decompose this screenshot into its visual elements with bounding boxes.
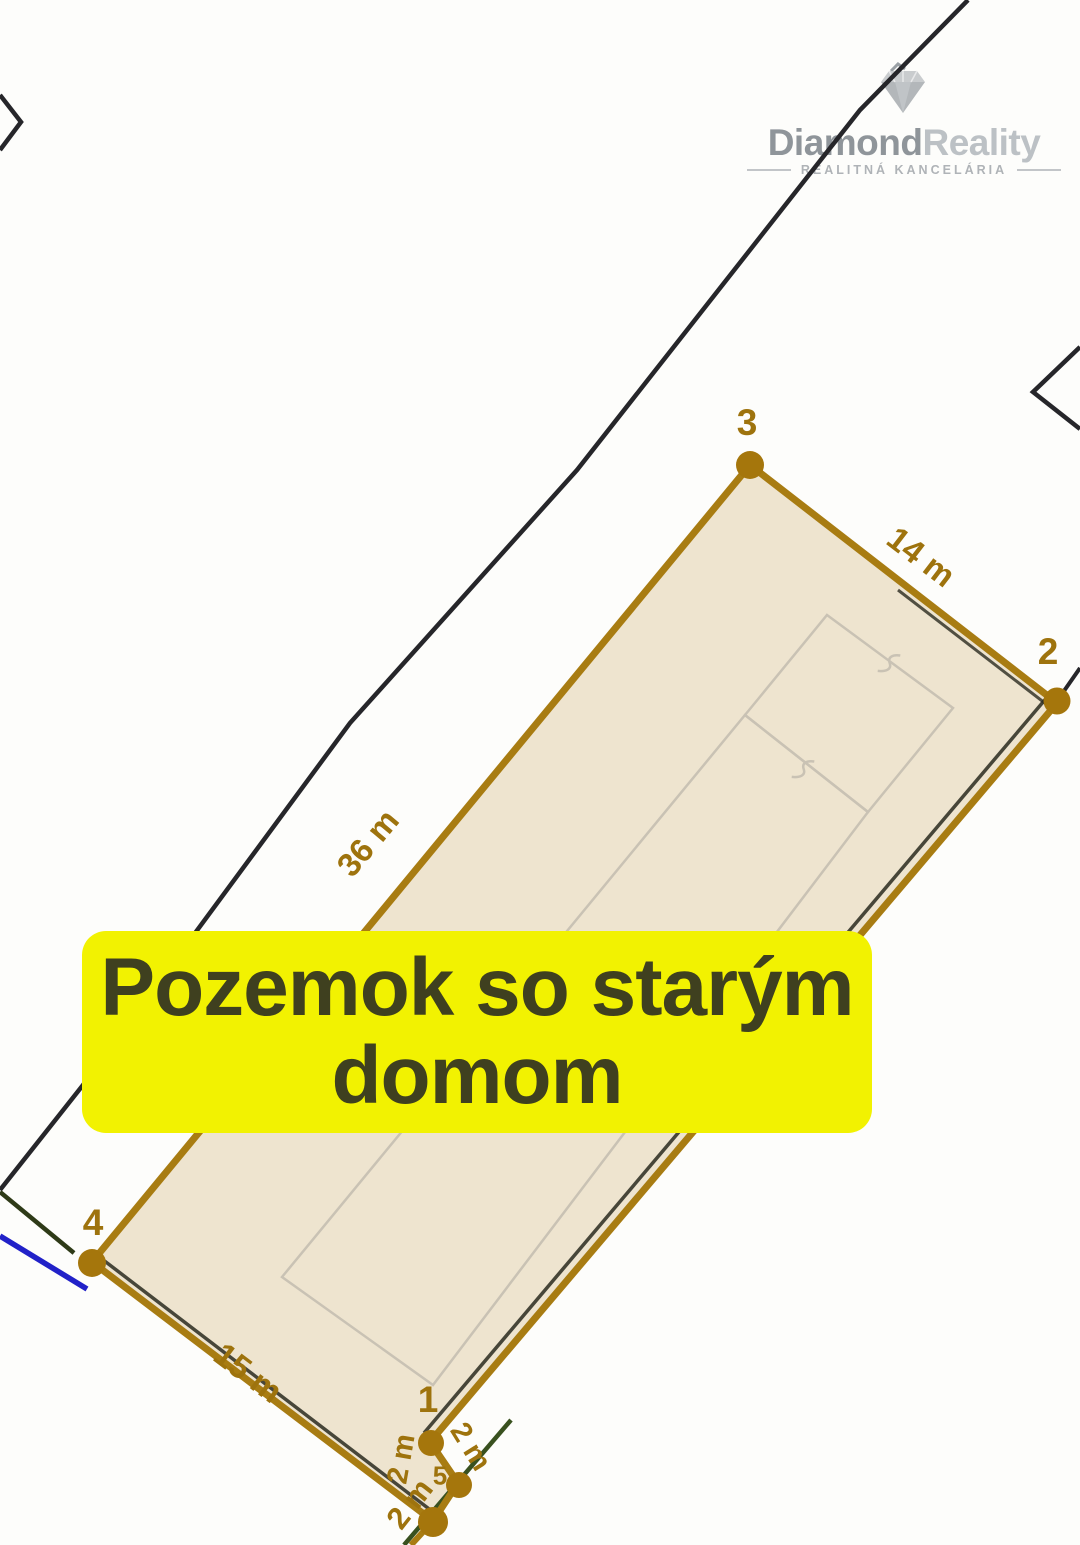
corner-dot-3 <box>736 451 764 479</box>
corner-label-4: 4 <box>83 1202 104 1244</box>
parcel-map-drawing <box>0 0 1080 1545</box>
corner-dot-4 <box>78 1249 106 1277</box>
neighbor-boundary-chevron-right <box>1033 347 1080 429</box>
blue-utility-line <box>0 1236 87 1289</box>
corner-label-2: 2 <box>1038 631 1059 673</box>
corner-label-1: 1 <box>418 1379 439 1421</box>
cadastral-map-image: DiamondReality REALITNÁ KANCELÁRIA <box>0 0 1080 1545</box>
corner-dot-2 <box>1044 688 1071 715</box>
banner-title-line2: domom <box>331 1035 622 1117</box>
banner-title-line1: Pozemok so starým <box>100 947 853 1029</box>
corner-label-3: 3 <box>737 402 758 444</box>
corner-dot-1 <box>418 1430 444 1456</box>
title-banner: Pozemok so starým domom <box>82 931 872 1133</box>
neighbor-boundary-chevron-left <box>0 95 21 150</box>
corner-label-5: 5 <box>433 1461 447 1492</box>
